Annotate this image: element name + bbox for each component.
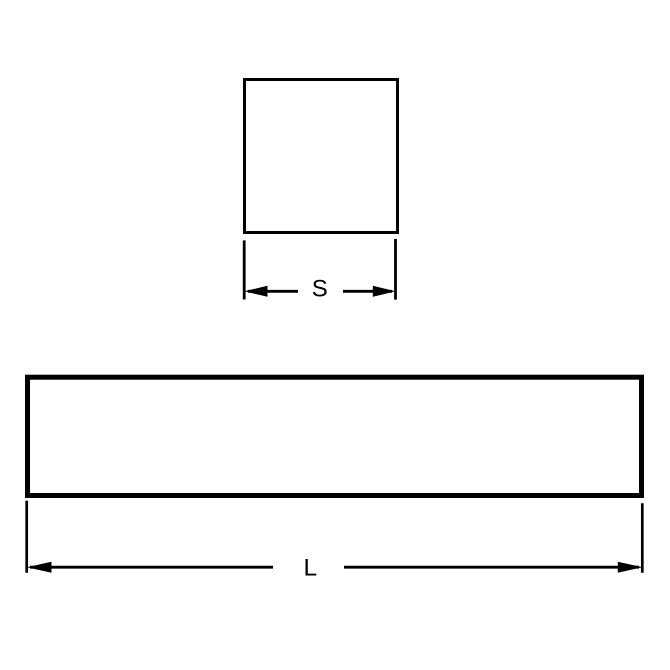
svg-text:L: L: [304, 555, 318, 582]
svg-text:S: S: [312, 275, 328, 302]
